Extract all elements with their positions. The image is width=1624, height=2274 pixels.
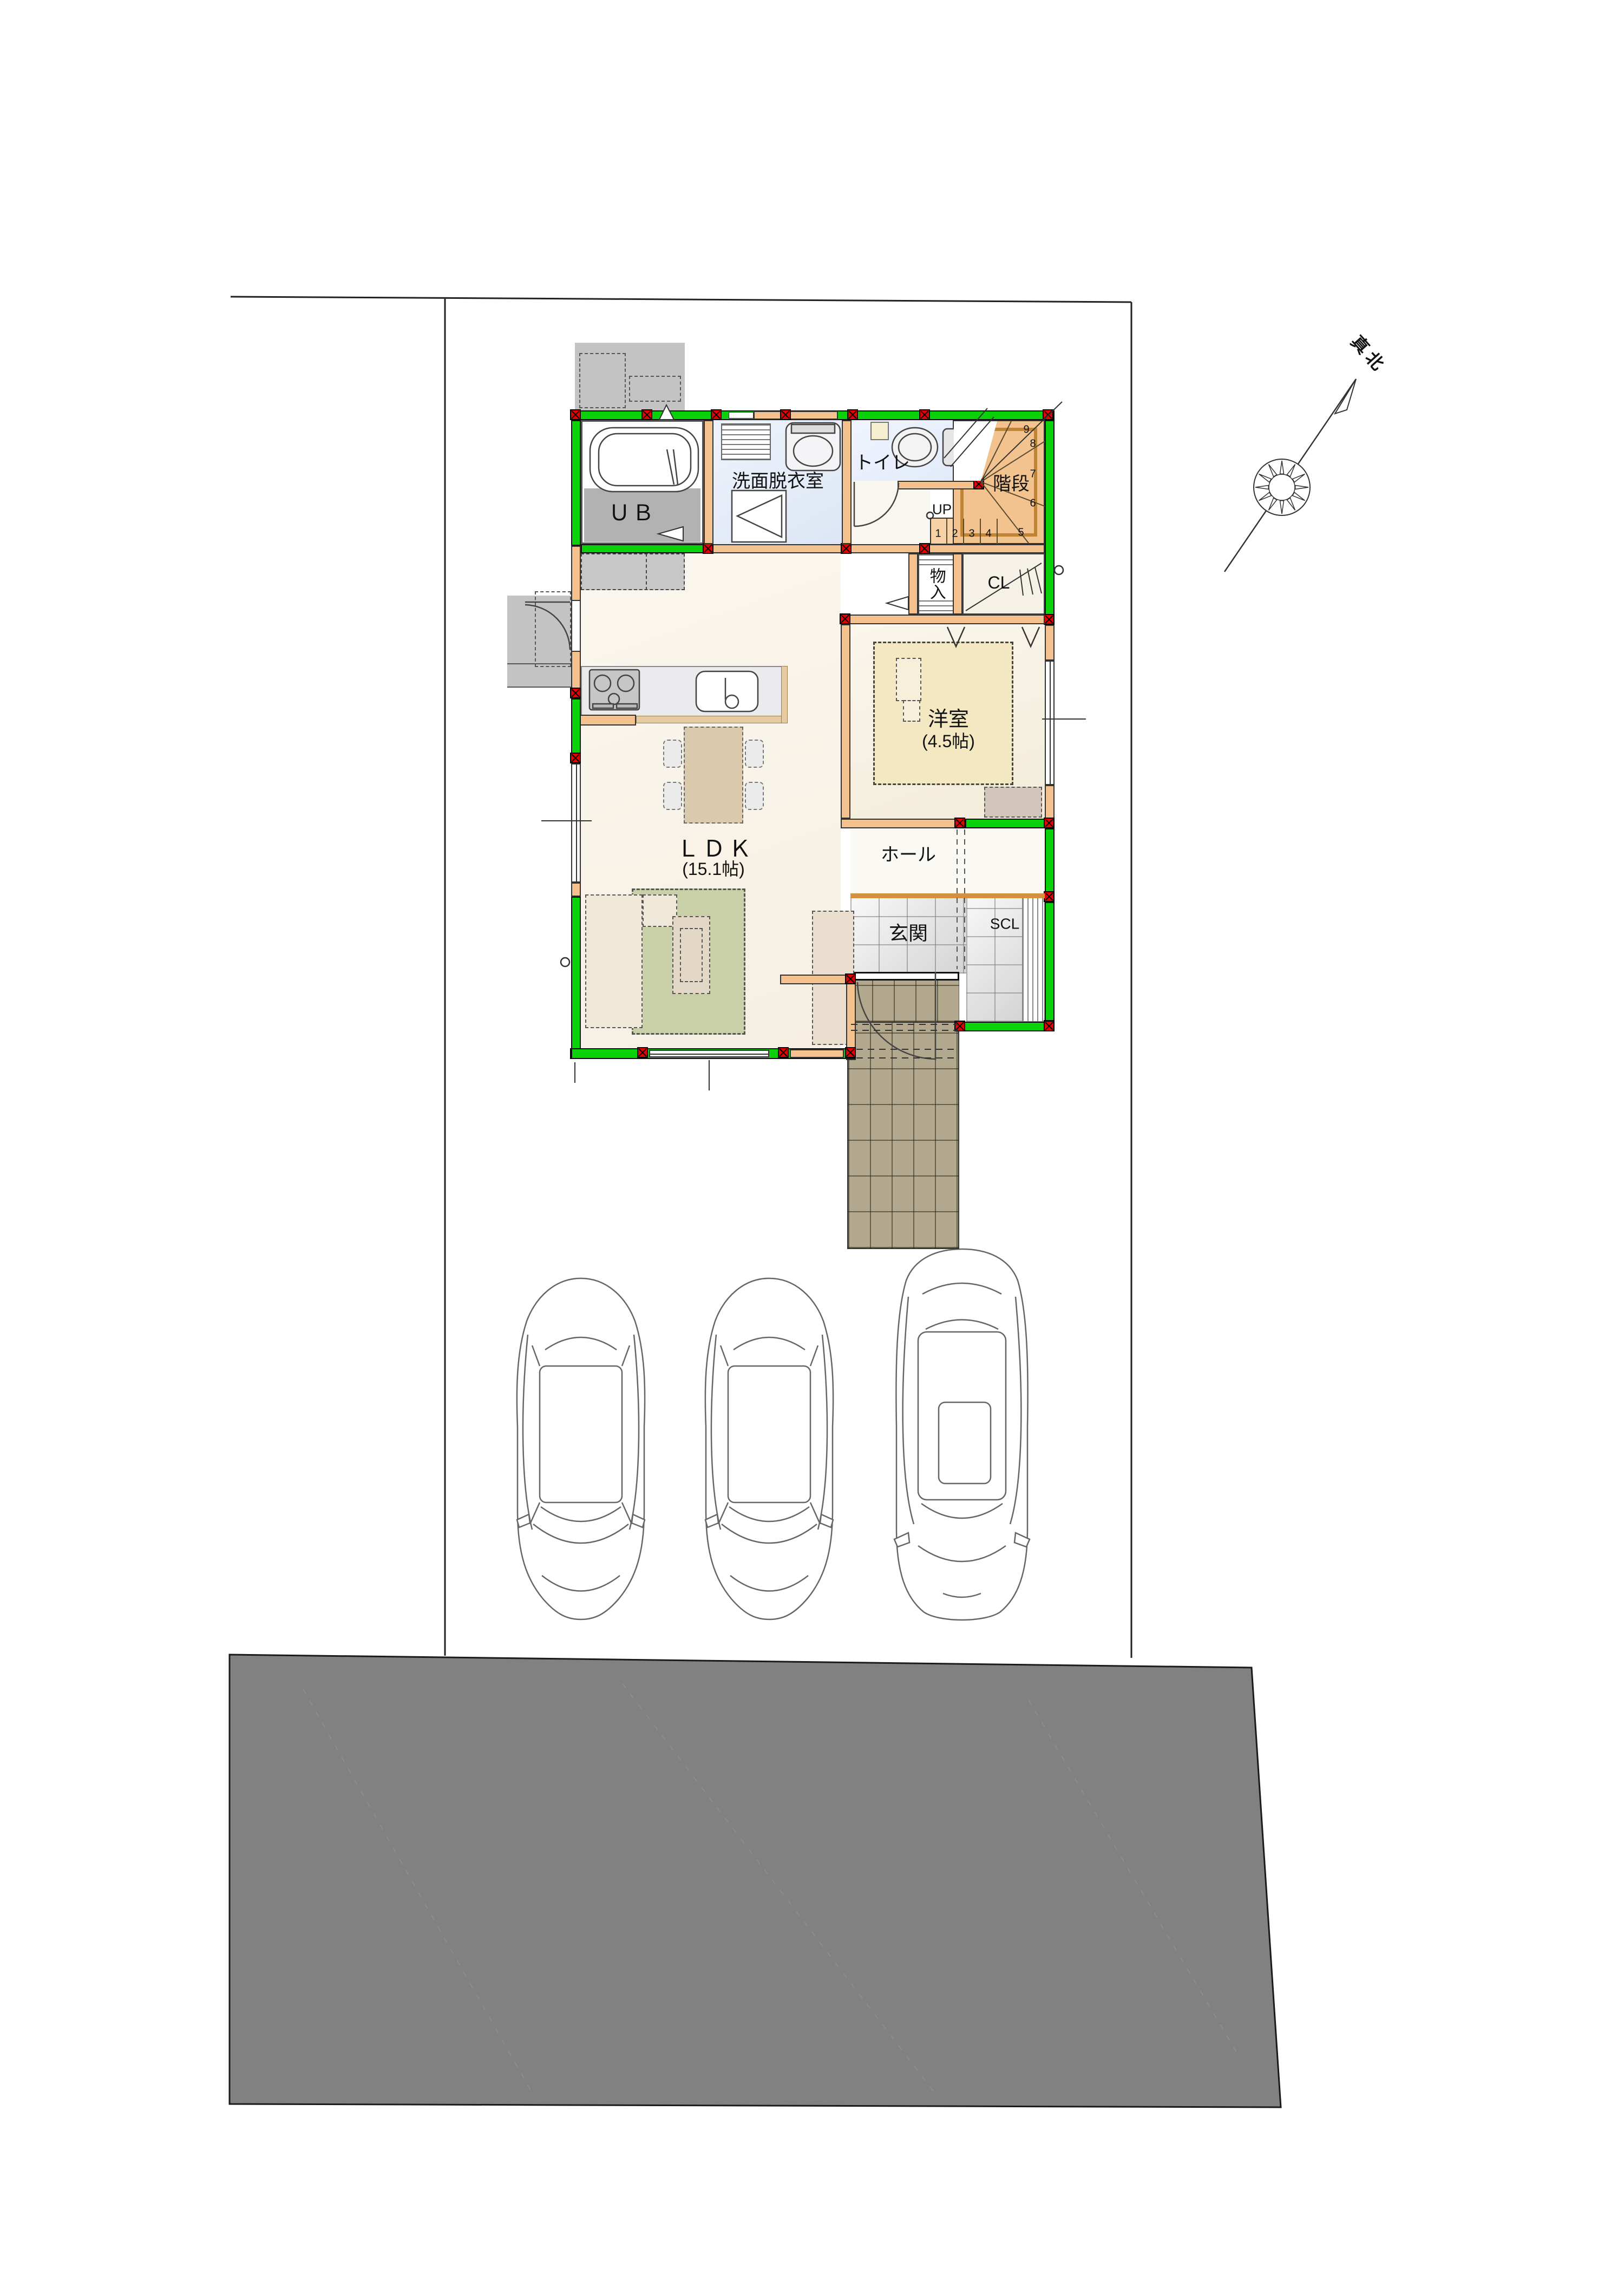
entrance-door-arc — [857, 972, 935, 1060]
room-label-ub: ＵＢ — [608, 502, 656, 525]
room-label-toilet: トイレ — [855, 454, 910, 473]
stair-number: 1 — [935, 528, 941, 540]
room-label-storage: 物入 — [927, 567, 945, 600]
room-label-western: 洋室 — [928, 709, 969, 731]
room-label-hall: ホール — [881, 846, 936, 865]
stair-number: 4 — [985, 528, 991, 540]
room-label-stairs: 階段 — [993, 475, 1030, 494]
room-label-ldk: ＬＤＫ — [677, 837, 755, 861]
room-label-entrance: 玄関 — [889, 923, 928, 944]
toilet-hall-door-arc — [854, 482, 899, 526]
stair-number: 8 — [1030, 439, 1036, 450]
stair-number: 2 — [952, 528, 958, 540]
sliding-door-v-marks — [947, 627, 1039, 646]
survey-point — [561, 958, 569, 966]
hall-scl-dashed-opening — [957, 829, 965, 969]
room-size-ldk: (15.1帖) — [682, 860, 745, 879]
bathtub-icon — [590, 428, 698, 492]
plan-detail-layer — [0, 0, 1624, 2274]
stairs-up-label: UP — [932, 502, 952, 517]
stove-icon — [590, 670, 639, 710]
stair-number: 7 — [1030, 469, 1036, 480]
back-door-arc — [525, 602, 570, 650]
room-label-washroom: 洗面脱衣室 — [732, 472, 824, 492]
dimension-ticks — [541, 719, 1086, 1090]
washbasin-icon — [786, 423, 840, 471]
room-label-closet: CL — [988, 574, 1010, 592]
vent-mark — [659, 405, 674, 420]
stair-number: 9 — [1023, 424, 1029, 436]
survey-point — [1055, 566, 1063, 574]
stair-number: 3 — [968, 528, 974, 540]
site-plan-canvas: ＵＢ 洗面脱衣室 トイレ 階段 UP 1 2 3 4 5 6 7 8 9 物入 … — [0, 0, 1624, 2274]
kitchen-sink-icon — [696, 671, 758, 711]
washing-machine-icon — [732, 491, 786, 542]
stair-number: 5 — [1018, 527, 1024, 539]
stair-number: 6 — [1030, 498, 1036, 509]
room-label-scl: SCL — [990, 916, 1019, 931]
room-size-western: (4.5帖) — [922, 733, 975, 751]
